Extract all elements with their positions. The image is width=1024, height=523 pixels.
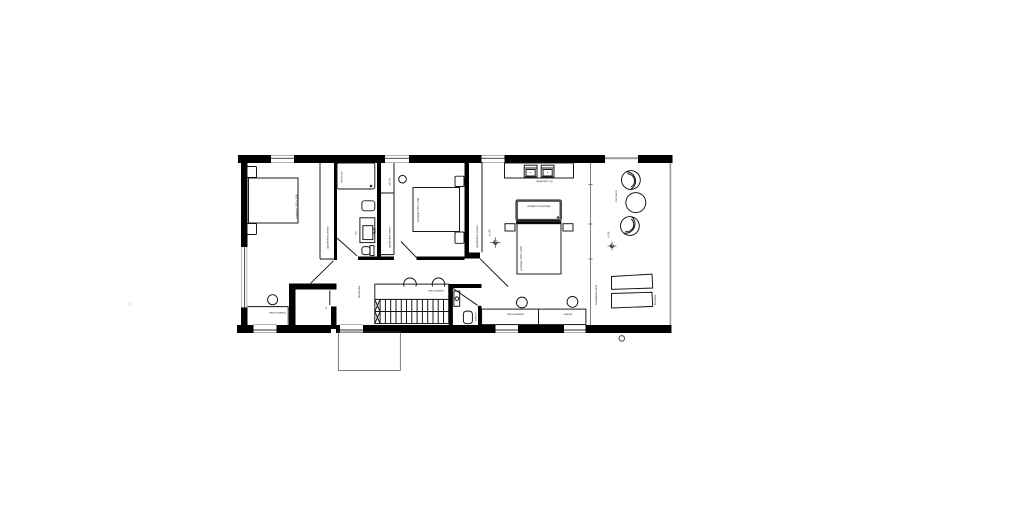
svg-text:predsoba: predsoba <box>357 285 361 298</box>
svg-text:pisalna miza: pisalna miza <box>428 289 444 293</box>
svg-text:2x umivalnik: 2x umivalnik <box>536 180 553 184</box>
svg-text:odl. kot: odl. kot <box>389 178 392 186</box>
svg-text:postelja 140 x 200: postelja 140 x 200 <box>295 194 299 219</box>
svg-text:pisalna miza: pisalna miza <box>507 312 524 316</box>
svg-text:um: um <box>355 231 358 234</box>
svg-text:omara: omara <box>563 312 572 316</box>
svg-text:postelja 160 x 200: postelja 160 x 200 <box>416 197 420 222</box>
svg-text:postelja 180 x 200: postelja 180 x 200 <box>519 246 523 271</box>
svg-text:pisalna miza: pisalna miza <box>269 311 286 315</box>
svg-text:garderobna omara: garderobna omara <box>389 227 392 248</box>
